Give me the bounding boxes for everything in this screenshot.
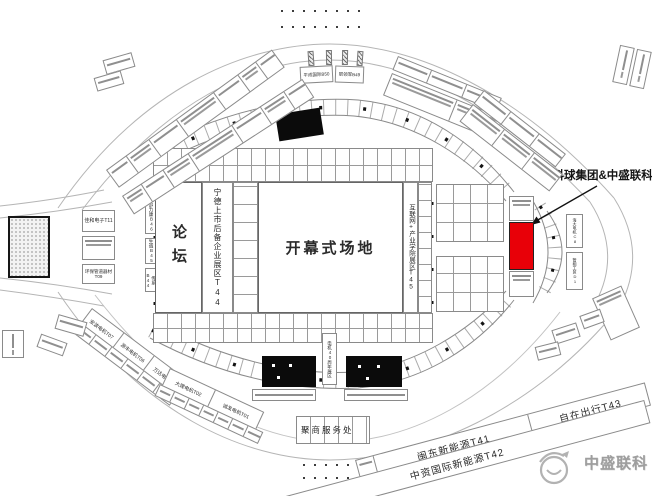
hall-ceremony: 开幕式场地	[258, 182, 403, 313]
booth-b50-label: 平成国际B50	[303, 71, 329, 78]
booth-dot	[272, 364, 275, 367]
booth-t11-label: 佳和电子T11	[84, 218, 112, 224]
black-booth-south-1	[262, 356, 316, 387]
booth-c8-label: 海大电机C8	[572, 218, 578, 244]
anniversary-zone-label: 电机40周年展区	[327, 341, 333, 378]
gate-hatch	[356, 51, 363, 66]
east-room-grid-bottom	[436, 256, 504, 312]
gate-hatch	[326, 50, 332, 65]
dot-cluster-top	[281, 10, 367, 12]
booth-above-highlight	[509, 196, 534, 221]
booth-dot	[366, 377, 369, 380]
east-corridor-rooms	[418, 182, 432, 313]
anniversary-zone-strip: 电机40周年展区	[322, 333, 337, 385]
booth-dot	[377, 365, 380, 368]
east-room-grid-top	[436, 184, 504, 242]
hall-ceremony-label: 开幕式场地	[285, 237, 375, 258]
red-highlight-booth	[509, 222, 534, 270]
zone-t44-label: 宁德上市后备企业展区T44	[212, 188, 223, 308]
booth-b49: 职领军B49	[335, 65, 365, 83]
gate-hatch	[307, 51, 314, 66]
booth-t09-label: 环保管道器材T09	[83, 269, 114, 280]
hall-forum: 论坛	[155, 182, 202, 313]
booth-dot	[277, 376, 280, 379]
zone-t45: 互联网+产业学院展区T45	[403, 182, 418, 313]
stage-block	[8, 216, 50, 278]
zone-t45-label: 互联网+产业学院展区T45	[406, 204, 416, 291]
service-desk-text: 聚商服务处	[301, 425, 354, 435]
zone-t44: 宁德上市后备企业展区T44	[202, 182, 233, 313]
hall-forum-label: 论坛	[168, 224, 189, 272]
corridor-rooms	[233, 182, 258, 313]
logo-icon	[532, 446, 576, 488]
outer-booth	[2, 330, 24, 358]
booth-t11: 佳和电子T11	[82, 210, 115, 232]
booth-b45-label: 生诚B45	[148, 239, 154, 263]
small-booth-row	[252, 389, 316, 401]
logo-text: 中盛联科	[584, 452, 648, 473]
booth-d1: 管相工贸D1	[566, 252, 583, 290]
gate-hatch	[342, 50, 348, 65]
booth-b49-label: 职领军B49	[339, 71, 361, 77]
floor-plan: 佳和电子T11 环保管道器材T09 舒力康B46 生诚B45 传系B44 论坛 …	[0, 0, 652, 496]
dot-cluster-top	[281, 26, 367, 28]
booth-dot	[289, 364, 292, 367]
black-booth-south-2	[346, 356, 402, 387]
booth-below-highlight	[509, 271, 534, 297]
booth-dot	[358, 365, 361, 368]
booth-t10	[82, 236, 115, 260]
logo-text-label: 中盛联科	[584, 455, 648, 472]
small-booth-row	[344, 389, 408, 401]
booth-b46-label: 舒力康B46	[148, 203, 154, 232]
south-room-band	[153, 313, 433, 343]
booth-c8: 海大电机C8	[566, 214, 583, 248]
booth-t09: 环保管道器材T09	[82, 264, 115, 284]
service-desk-label: 聚商服务处	[301, 424, 354, 436]
booth-d1-label: 管相工贸D1	[572, 258, 578, 284]
